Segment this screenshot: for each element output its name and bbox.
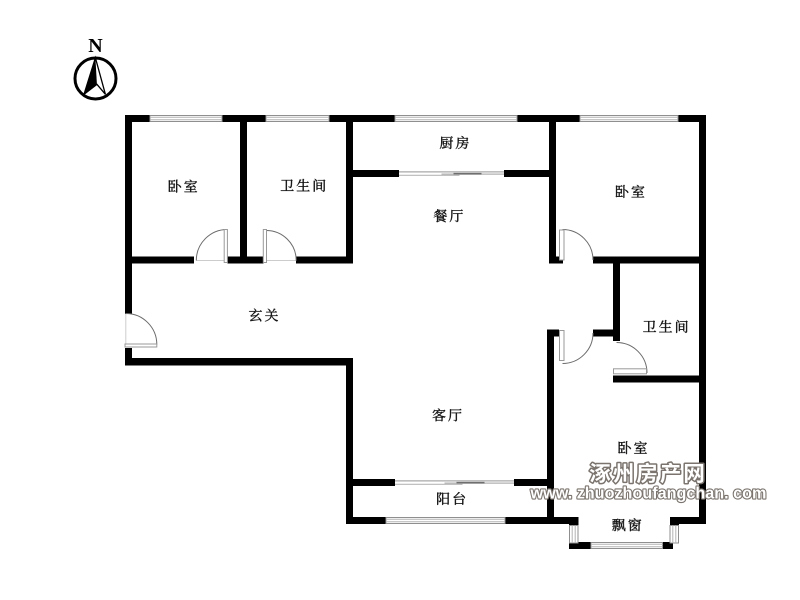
svg-text:N: N [88,35,103,57]
svg-text:www. zhuozhoufangchan. com: www. zhuozhoufangchan. com [530,485,767,503]
